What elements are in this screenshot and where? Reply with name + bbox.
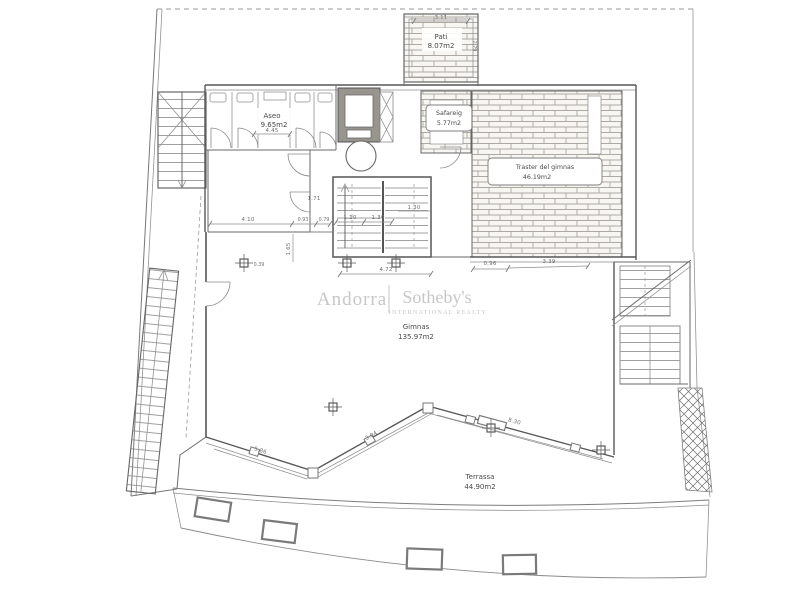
room-area-pati: 8.07m2: [428, 42, 455, 50]
room-label-pati: Pati: [435, 33, 448, 41]
dim-hall: 4.10: [241, 217, 254, 223]
terrace-band: [173, 488, 709, 578]
watermark: Andorra Sotheby's INTERNATIONAL REALTY: [317, 285, 487, 316]
dim-terrace-c: 8.30: [507, 417, 521, 426]
terrace-planter: [503, 555, 536, 575]
traster-room: [470, 91, 636, 262]
dim-seg-093: 0.93: [298, 217, 309, 223]
room-label-traster: Traster del gimnas: [515, 164, 574, 171]
column-marker: [592, 441, 610, 459]
watermark-sothebys: Sotheby's: [402, 287, 471, 307]
dim-seg-079: 0.79: [319, 217, 330, 223]
toilet-fixture: [237, 93, 253, 102]
dim-traster-096: 0.96: [483, 261, 496, 267]
dim-pati-height: 2.79: [471, 41, 477, 52]
dim-aseo-width: 4.45: [265, 128, 278, 134]
column-markers: [235, 254, 610, 459]
safareig-room: [421, 91, 472, 168]
dim-door: 1.71: [307, 196, 320, 202]
room-area-gimnas: 135.97m2: [398, 333, 434, 341]
room-label-safareig: Safareig: [436, 110, 462, 117]
floor-plan-drawing: Andorra Sotheby's INTERNATIONAL REALTY P…: [0, 0, 800, 600]
sink-fixture: [264, 92, 286, 100]
dim-left-165: 1.65: [286, 242, 292, 255]
watermark-subtitle: INTERNATIONAL REALTY: [389, 310, 487, 316]
toilet-fixture: [295, 93, 310, 102]
floor-plan-page: Andorra Sotheby's INTERNATIONAL REALTY P…: [0, 0, 800, 600]
terrace-planter: [262, 520, 297, 543]
vegetation-hatch: [678, 388, 712, 492]
left-corridor-stairs: [126, 92, 206, 494]
terrace-planter: [407, 548, 443, 569]
central-staircase: [310, 177, 472, 257]
spiral-stair-circle: [346, 141, 376, 171]
storage-room: [206, 150, 333, 306]
toilet-fixture: [318, 93, 332, 102]
dim-col: 0.39: [254, 262, 265, 268]
safareig-label-box: [426, 105, 472, 131]
long-left-staircase: [126, 268, 178, 494]
pati-courtyard: [404, 14, 478, 86]
room-label-terrassa: Terrassa: [465, 473, 495, 481]
dim-traster-339: 3.39: [542, 259, 555, 265]
watermark-andorra: Andorra: [317, 289, 387, 310]
room-label-gimnas: Gimnas: [403, 323, 430, 331]
column-marker: [324, 398, 342, 416]
toilet-fixture: [210, 93, 226, 102]
right-staircase: [612, 252, 712, 497]
room-area-safareig: 5.77m2: [437, 120, 461, 127]
room-label-aseo: Aseo: [263, 112, 280, 120]
dim-stair-width: 4.72: [379, 267, 392, 273]
glass-facade: [206, 403, 614, 478]
dim-stair-130a: 1.30: [371, 215, 384, 221]
dim-pati-width: 3.11: [434, 15, 447, 21]
room-area-traster: 46.19m2: [523, 174, 551, 181]
dim-stair-130b: 1.30: [407, 205, 420, 211]
shaft-strip: [380, 92, 393, 142]
terrace-planter: [195, 497, 232, 521]
elevator-block: [338, 88, 393, 171]
dim-stair-110: 1.10: [343, 215, 356, 221]
column-marker: [235, 254, 253, 272]
room-area-terrassa: 44.90m2: [464, 483, 495, 491]
